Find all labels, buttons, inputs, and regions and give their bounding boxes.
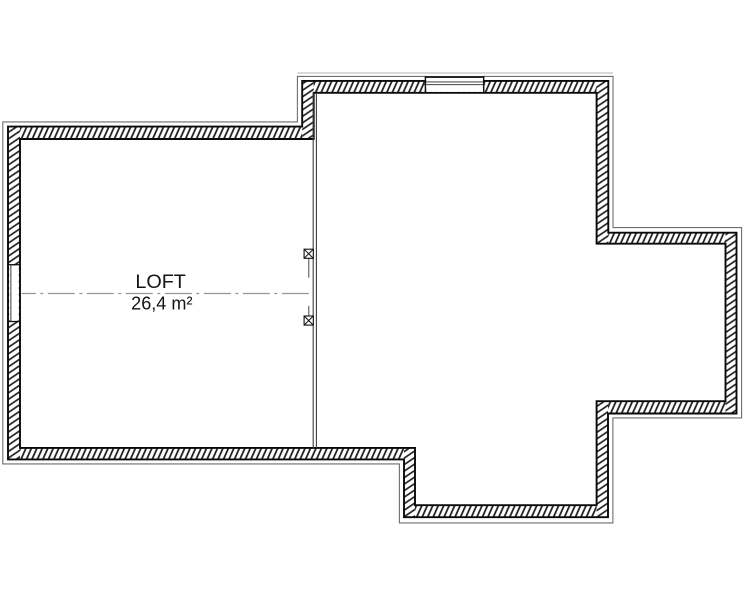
svg-text:26,4 m²: 26,4 m² — [131, 294, 192, 314]
svg-text:LOFT: LOFT — [135, 271, 186, 293]
